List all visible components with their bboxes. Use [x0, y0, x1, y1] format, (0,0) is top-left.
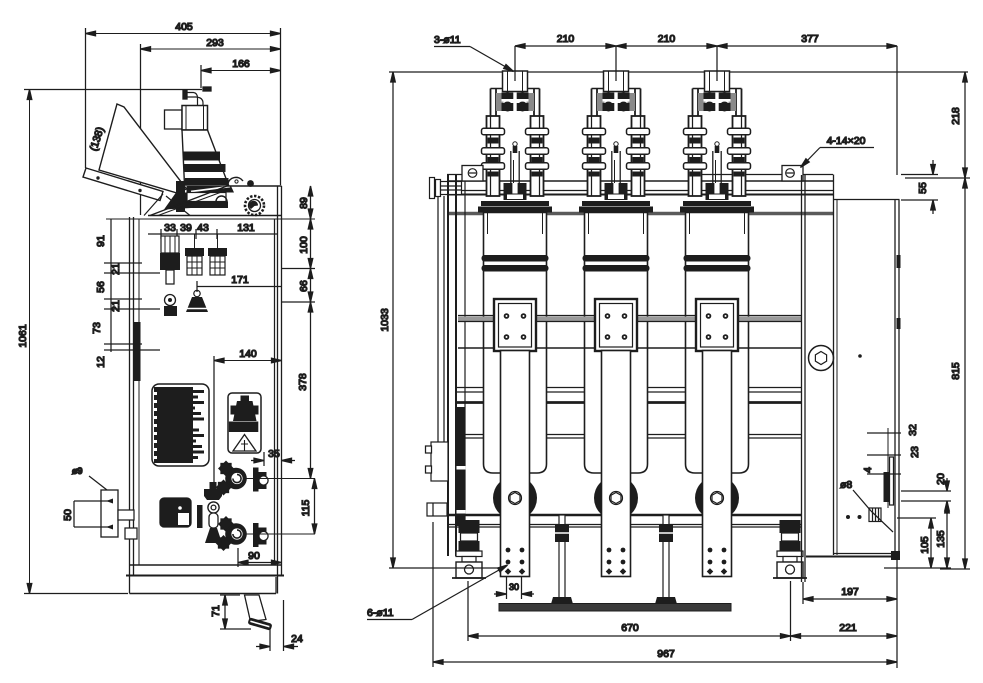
svg-text:33: 33 — [164, 222, 176, 234]
svg-text:89: 89 — [298, 197, 310, 209]
svg-text:377: 377 — [801, 33, 819, 45]
svg-text:166: 166 — [232, 58, 250, 70]
svg-text:66: 66 — [298, 280, 310, 292]
svg-text:24: 24 — [291, 633, 303, 645]
svg-text:23: 23 — [909, 446, 921, 458]
svg-text:218: 218 — [950, 107, 962, 125]
svg-text:105: 105 — [919, 536, 931, 554]
svg-text:90: 90 — [248, 550, 260, 562]
svg-text:73: 73 — [91, 322, 103, 334]
svg-text:30: 30 — [509, 582, 519, 592]
svg-text:670: 670 — [621, 622, 639, 634]
svg-text:(138): (138) — [88, 126, 107, 153]
svg-text:32: 32 — [907, 424, 919, 436]
svg-text:221: 221 — [839, 622, 857, 634]
svg-text:35: 35 — [268, 448, 280, 460]
svg-text:100: 100 — [298, 236, 310, 254]
svg-text:20: 20 — [935, 473, 947, 485]
svg-text:4: 4 — [862, 467, 874, 473]
svg-text:815: 815 — [950, 362, 962, 380]
svg-text:55: 55 — [917, 182, 929, 194]
svg-text:140: 140 — [239, 348, 257, 360]
svg-text:ø8: ø8 — [840, 479, 852, 491]
svg-text:210: 210 — [557, 33, 575, 45]
svg-text:4-14×20: 4-14×20 — [827, 135, 866, 147]
svg-text:131: 131 — [237, 222, 255, 234]
svg-text:1061: 1061 — [17, 324, 29, 348]
svg-text:378: 378 — [297, 373, 309, 391]
svg-text:71: 71 — [210, 605, 222, 617]
svg-text:56: 56 — [95, 281, 107, 293]
svg-text:135: 135 — [935, 530, 947, 548]
svg-text:50: 50 — [62, 509, 74, 521]
svg-text:91: 91 — [95, 235, 107, 247]
svg-text:43: 43 — [197, 222, 209, 234]
svg-text:967: 967 — [657, 648, 675, 660]
svg-text:171: 171 — [231, 274, 249, 286]
svg-text:293: 293 — [206, 37, 224, 49]
svg-text:3-ø11: 3-ø11 — [434, 34, 461, 46]
svg-text:ø9: ø9 — [72, 466, 83, 476]
svg-text:21: 21 — [110, 263, 122, 275]
svg-text:39: 39 — [180, 222, 192, 234]
svg-text:405: 405 — [175, 21, 193, 33]
svg-text:210: 210 — [658, 33, 676, 45]
svg-text:115: 115 — [300, 499, 312, 516]
svg-text:1033: 1033 — [379, 308, 391, 332]
svg-text:6-ø11: 6-ø11 — [367, 607, 394, 619]
svg-text:12: 12 — [95, 356, 107, 368]
svg-text:21: 21 — [110, 300, 122, 312]
svg-text:197: 197 — [841, 586, 859, 598]
